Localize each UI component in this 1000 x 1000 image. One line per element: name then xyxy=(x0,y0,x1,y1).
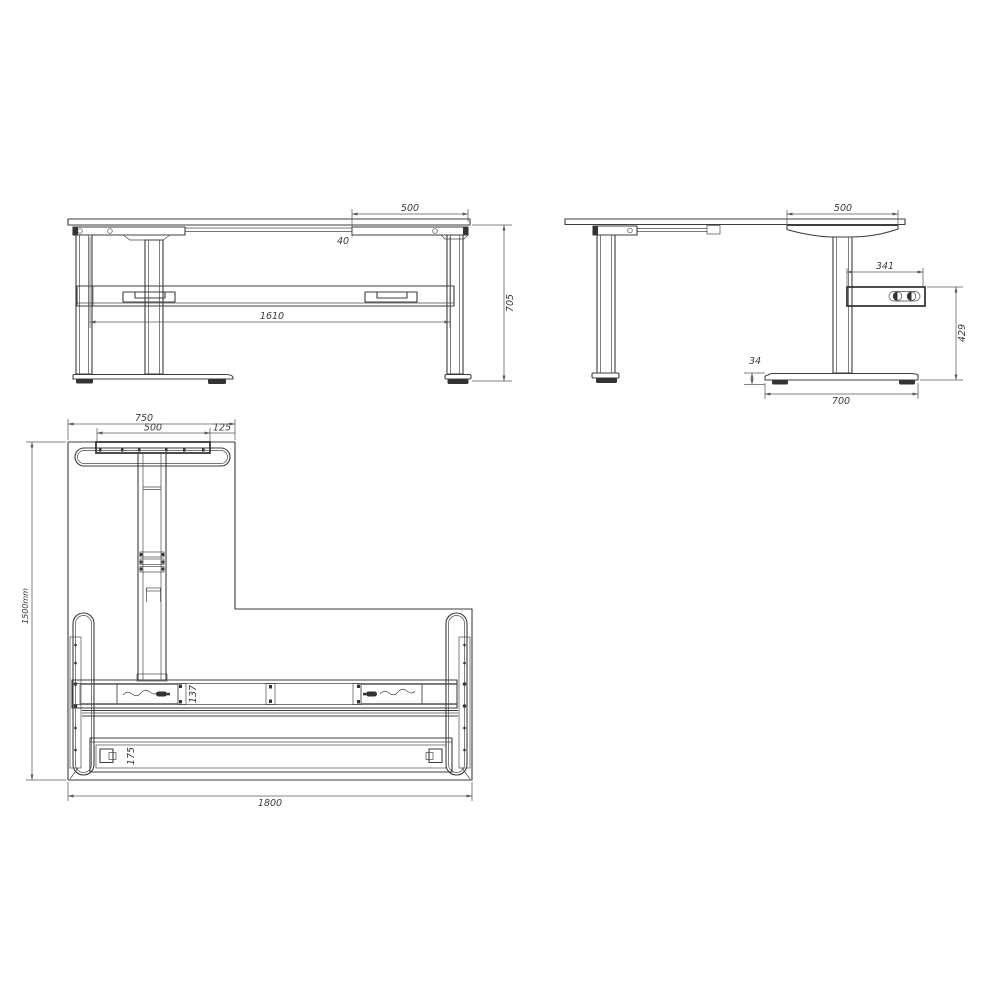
center-leg-column xyxy=(145,240,163,374)
middle-support-rail xyxy=(185,228,352,232)
dim-label-front-gap: 40 xyxy=(337,236,349,247)
right-leg-bracket xyxy=(441,235,468,239)
cable-left xyxy=(123,690,158,696)
front-view: 500 40 1610 705 xyxy=(68,203,516,384)
dim-label-side-box-height: 429 xyxy=(957,324,968,342)
right-leg-column xyxy=(447,235,463,374)
right-foot-front xyxy=(445,375,471,385)
beam-divider-left xyxy=(178,684,186,705)
tabletop-side xyxy=(565,219,905,225)
cable-right xyxy=(380,689,415,695)
cable-plug-left xyxy=(156,692,167,697)
cable-plug-right xyxy=(366,692,377,697)
side-right-foot xyxy=(765,374,918,385)
dim-label-side-overhang: 500 xyxy=(834,203,852,214)
dim-label-side-foot-length: 700 xyxy=(832,396,850,407)
column-clip xyxy=(147,588,161,602)
rail-bracket-right xyxy=(426,749,442,763)
left-leg-bracket xyxy=(123,235,170,240)
rail-bracket-left xyxy=(100,749,116,763)
side-view: 500 341 429 34 700 xyxy=(565,203,968,407)
dim-label-plan-plate: 500 xyxy=(144,423,162,434)
plan-top-foot xyxy=(75,448,230,466)
desktop-outline xyxy=(68,442,472,780)
side-dimensions: 500 341 429 34 700 xyxy=(744,203,968,407)
dim-label-side-foot-height: 34 xyxy=(749,356,761,367)
dim-label-front-overhang: 500 xyxy=(401,203,419,214)
dim-label-front-beam: 1610 xyxy=(260,311,284,322)
dim-label-plan-depth: 1500mm xyxy=(21,588,30,624)
beam-end-box-right xyxy=(422,685,457,704)
beam-handle-cutout-left xyxy=(123,292,175,302)
side-leg-top-bracket xyxy=(787,226,898,238)
dim-label-plan-beam-depth: 137 xyxy=(188,685,199,703)
return-leg-column xyxy=(76,235,92,374)
left-foot-front xyxy=(73,375,233,385)
dim-label-front-height: 705 xyxy=(505,294,516,312)
plan-right-foot xyxy=(446,613,470,779)
side-right-leg-column xyxy=(833,237,852,373)
plan-bottom-rail xyxy=(90,738,452,772)
plan-view: 750 500 125 1500mm 1800 137 175 xyxy=(21,413,472,809)
plan-leg-column xyxy=(137,453,167,681)
left-mounting-rail xyxy=(73,227,185,235)
crossbeam-front xyxy=(77,286,454,306)
beam-handle-cutout-right xyxy=(365,292,417,302)
plan-dimensions: 750 500 125 1500mm 1800 137 175 xyxy=(21,413,472,809)
dim-label-plan-rail-depth: 175 xyxy=(126,747,137,765)
dim-label-side-box-width: 341 xyxy=(876,261,894,272)
beam-connector-middle xyxy=(266,684,275,705)
plan-crossbeam xyxy=(72,680,457,708)
beam-end-box-left xyxy=(80,685,117,704)
beam-divider-right xyxy=(353,684,361,705)
side-left-leg-column xyxy=(597,235,615,373)
side-mounting-bracket xyxy=(593,226,720,236)
side-left-foot xyxy=(592,373,619,383)
drawing-page: 500 40 1610 705 xyxy=(0,0,1000,1000)
plan-edge-band xyxy=(82,711,458,717)
right-mounting-rail xyxy=(352,227,468,235)
technical-drawing: 500 40 1610 705 xyxy=(0,0,1000,1000)
dim-label-plan-offset: 125 xyxy=(213,423,231,434)
control-box xyxy=(847,287,925,306)
dim-label-plan-width: 1800 xyxy=(258,798,282,809)
tabletop-front xyxy=(68,219,470,225)
